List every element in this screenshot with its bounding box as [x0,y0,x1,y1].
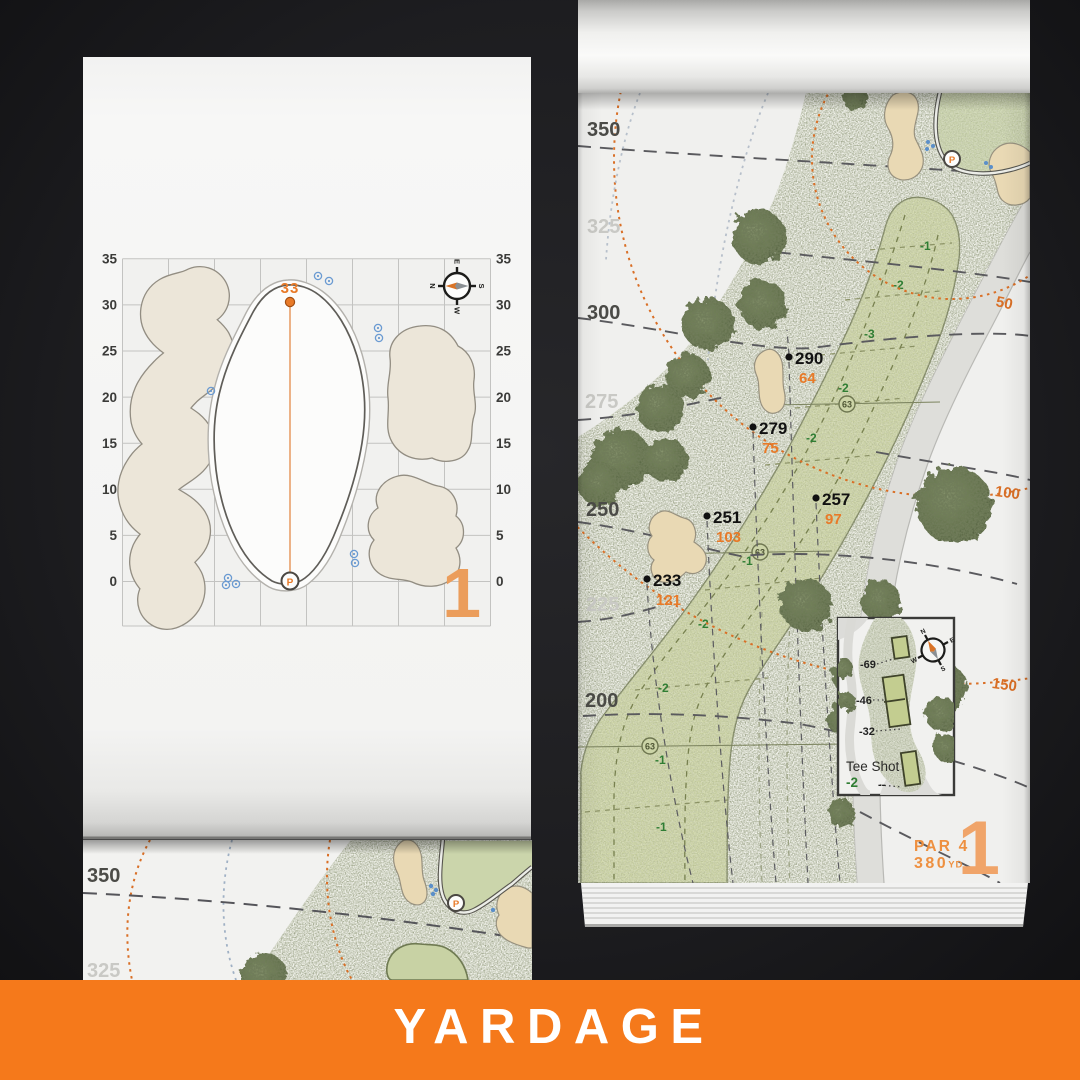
svg-text:-3: -3 [864,327,875,341]
svg-text:E: E [452,259,461,264]
svg-text:63: 63 [842,400,852,410]
svg-text:30: 30 [496,298,511,313]
svg-text:1: 1 [442,554,481,632]
svg-text:--: -- [878,779,886,791]
svg-text:350: 350 [87,865,120,887]
svg-text:-32: -32 [859,726,875,738]
svg-text:33: 33 [281,280,300,297]
svg-text:N: N [428,283,437,288]
svg-text:103: 103 [716,529,741,546]
svg-text:0: 0 [496,574,504,589]
svg-text:Tee Shot: Tee Shot [846,759,900,774]
svg-text:75: 75 [762,440,779,457]
svg-text:W: W [452,307,461,315]
svg-text:121: 121 [656,592,681,609]
svg-text:35: 35 [102,252,118,267]
svg-text:64: 64 [799,370,816,387]
svg-text:-1: -1 [655,753,666,767]
svg-text:251: 251 [713,508,741,527]
svg-text:-2: -2 [846,775,858,790]
svg-text:0: 0 [109,574,117,589]
svg-text:63: 63 [755,548,765,558]
svg-text:-2: -2 [893,278,904,292]
svg-text:YARDAGE: YARDAGE [393,1000,714,1054]
svg-text:233: 233 [653,571,681,590]
svg-text:-2: -2 [838,381,849,395]
svg-text:-2: -2 [658,681,669,695]
svg-text:63: 63 [645,742,655,752]
svg-text:25: 25 [496,344,512,359]
svg-text:-46: -46 [856,695,872,707]
svg-text:325: 325 [87,960,120,982]
svg-text:279: 279 [759,419,787,438]
svg-text:-2: -2 [806,431,817,445]
svg-text:15: 15 [102,436,118,451]
svg-text:30: 30 [102,298,117,313]
svg-text:257: 257 [822,490,850,509]
svg-text:35: 35 [496,252,512,267]
svg-text:20: 20 [496,390,511,405]
svg-text:P: P [949,155,956,166]
svg-text:10: 10 [496,482,511,497]
svg-text:15: 15 [496,436,512,451]
svg-text:5: 5 [109,528,117,543]
svg-text:P: P [453,899,460,910]
svg-text:97: 97 [825,511,842,528]
svg-text:1: 1 [958,806,1000,891]
svg-text:290: 290 [795,349,823,368]
svg-text:-1: -1 [656,820,667,834]
svg-text:20: 20 [102,390,117,405]
svg-text:25: 25 [102,344,118,359]
svg-text:-1: -1 [920,239,931,253]
svg-text:-69: -69 [860,659,876,671]
svg-text:P: P [287,578,294,589]
svg-text:S: S [477,283,486,288]
svg-text:10: 10 [102,482,117,497]
svg-text:5: 5 [496,528,504,543]
